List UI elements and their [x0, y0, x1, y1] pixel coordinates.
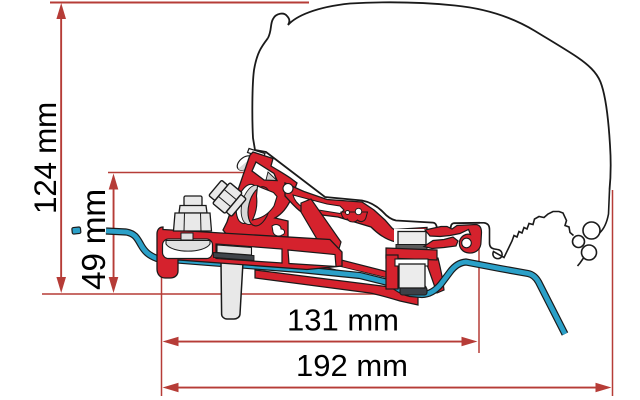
- svg-text:192 mm: 192 mm: [296, 348, 408, 383]
- svg-text:49 mm: 49 mm: [76, 189, 113, 290]
- svg-text:131 mm: 131 mm: [287, 303, 399, 338]
- svg-text:124 mm: 124 mm: [27, 102, 63, 214]
